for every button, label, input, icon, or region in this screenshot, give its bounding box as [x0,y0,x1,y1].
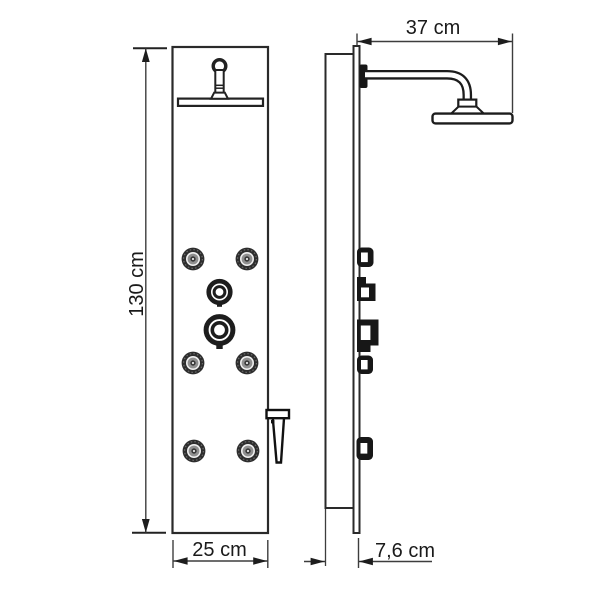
arrowhead-right-pointing [311,558,325,565]
arrowhead-left [174,557,188,564]
side-panel-body [326,54,355,508]
diagram-canvas: 130 cm 25 cm 37 cm 7,6 cm [0,0,600,600]
body-jet [237,440,260,463]
hand-shower-handle [273,418,284,462]
shower-arm-front [213,60,226,95]
body-jet [236,352,259,375]
side-view [326,46,513,566]
width-label: 25 cm [192,539,246,561]
depth-label: 7,6 cm [375,540,435,562]
side-knob-3 [357,320,379,353]
front-view [173,47,290,533]
side-knob-4 [357,356,373,375]
arrowhead-left-pointing [359,558,373,565]
hand-shower [267,410,290,463]
dim-arm: 37 cm [357,17,513,113]
hand-shower-holder [267,410,290,418]
dial-nub [217,303,222,307]
height-label: 130 cm [126,251,148,317]
arrowhead-right [253,557,267,564]
arm-label: 37 cm [406,17,460,39]
rain-head-side [433,114,513,124]
arrowhead-right [498,38,512,45]
body-jet [182,352,205,375]
dim-width: 25 cm [173,539,268,568]
dim-depth: 7,6 cm [304,538,435,568]
side-knob-1 [357,248,374,268]
arrowhead-down [142,519,150,533]
shower-arm-side [365,75,467,101]
dim-height: 130 cm [126,48,167,533]
head-flare-front [211,93,228,99]
hand-shower-pin [271,420,274,423]
arm-stem-front [215,70,223,95]
arrowhead-up [142,48,150,62]
arrowhead-left [358,38,372,45]
side-knob-5 [357,437,374,460]
body-jet [183,440,206,463]
body-jet [236,248,259,271]
side-knob-2 [357,277,376,301]
dial-nub [216,345,222,349]
shower-panel-drawing: 130 cm 25 cm 37 cm 7,6 cm [0,0,600,600]
body-jet [182,248,205,271]
